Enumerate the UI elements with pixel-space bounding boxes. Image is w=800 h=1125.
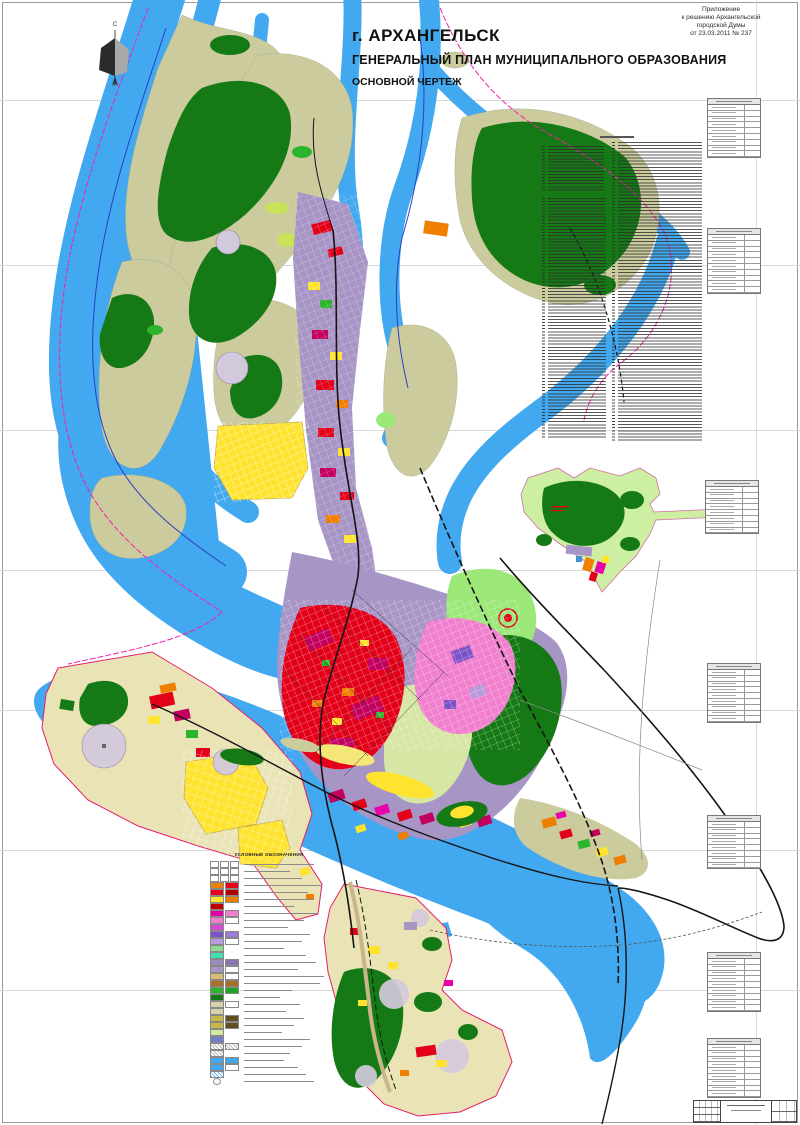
legend-label [244, 864, 314, 865]
plan-name: ГЕНЕРАЛЬНЫЙ ПЛАН МУНИЦИПАЛЬНОГО ОБРАЗОВА… [352, 53, 726, 67]
sheet-title: г. АРХАНГЕЛЬСК ГЕНЕРАЛЬНЫЙ ПЛАН МУНИЦИПА… [352, 26, 726, 88]
title-block-revision-grid [694, 1101, 721, 1122]
title-block-sheet-grid [772, 1101, 796, 1122]
legend-label [244, 1074, 306, 1075]
north-arrow: С [93, 22, 137, 90]
legend-label [244, 997, 280, 998]
side-table [707, 228, 761, 294]
object-list-column-1a [548, 146, 604, 192]
side-table [707, 952, 761, 1012]
legend-label [244, 990, 292, 991]
legend-swatch [213, 1078, 221, 1085]
legend-label [244, 1053, 290, 1054]
map-legend: УСЛОВНЫЕ ОБОЗНАЧЕНИЯ [210, 852, 328, 1085]
title-block [693, 1100, 797, 1123]
city-name: г. АРХАНГЕЛЬСК [352, 26, 726, 46]
legend-label [244, 1067, 298, 1068]
legend-rows [210, 861, 328, 1085]
legend-label [244, 1011, 286, 1012]
annotation-line: Приложение [648, 6, 794, 14]
legend-label [244, 1032, 282, 1033]
title-block-name-cell [721, 1101, 772, 1122]
object-list-header [600, 136, 634, 138]
legend-label [244, 1046, 302, 1047]
legend-label [244, 892, 308, 893]
drawing-name: ОСНОВНОЙ ЧЕРТЕЖ [352, 76, 726, 88]
legend-label [244, 962, 316, 963]
compass-icon [93, 22, 137, 90]
legend-label [244, 969, 298, 970]
legend-title: УСЛОВНЫЕ ОБОЗНАЧЕНИЯ [210, 852, 328, 857]
drawing-sheet: Приложение к решению Архангельской город… [0, 0, 800, 1125]
legend-label [244, 906, 294, 907]
legend-label [244, 948, 284, 949]
legend-label [244, 1025, 294, 1026]
annotation-line: к решению Архангельской [648, 14, 794, 22]
legend-label [244, 927, 288, 928]
legend-label [244, 1004, 300, 1005]
legend-label [244, 1060, 284, 1061]
legend-label [244, 955, 306, 956]
legend-label [244, 885, 322, 886]
legend-label [244, 899, 314, 900]
legend-label [244, 920, 304, 921]
object-list-column-2 [618, 142, 702, 442]
legend-label [244, 934, 310, 935]
object-list-column-1b [548, 198, 606, 440]
legend-row [210, 1078, 328, 1085]
legend-label [244, 871, 290, 872]
legend-label [244, 1018, 304, 1019]
legend-label [244, 1081, 314, 1082]
legend-label [244, 976, 324, 977]
side-table [707, 815, 761, 869]
side-table [707, 1038, 761, 1098]
legend-label [244, 913, 318, 914]
legend-label [244, 983, 320, 984]
legend-label [244, 941, 302, 942]
side-table [707, 663, 761, 723]
north-label: С [113, 22, 117, 28]
side-table [707, 98, 761, 158]
legend-label [244, 1039, 310, 1040]
legend-label [244, 878, 302, 879]
side-table [705, 480, 759, 534]
